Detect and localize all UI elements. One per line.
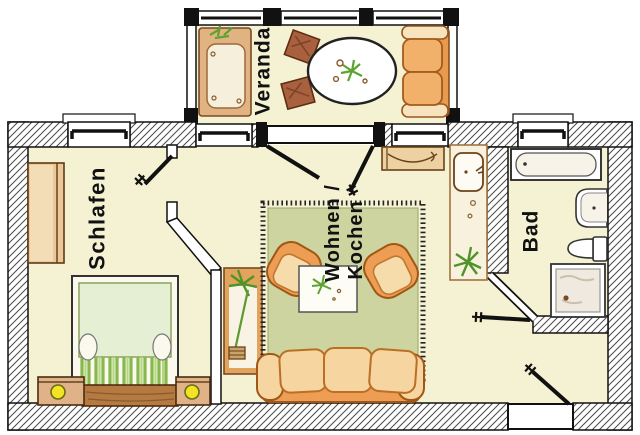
tall-plant [224,268,262,374]
window-living-right [392,124,448,146]
double-bed [72,276,178,406]
shower [551,264,605,317]
wall-right [608,122,632,430]
bathtub [511,149,601,180]
room-label-veranda: Veranda [252,27,275,116]
shower-drain-icon [563,295,568,300]
sink-counter [450,145,487,280]
floorplan-image: Veranda Schlafen Wohnen / Kochen Bad [0,0,640,435]
wall-bottom [573,403,632,430]
room-label-wohnen: Wohnen / [322,184,344,282]
wall-bottom [8,403,508,430]
wall-bath-left [487,147,508,273]
partition-bedroom [211,270,221,404]
sofa-cushion [279,349,327,393]
veranda-table [308,38,396,104]
nightstand-left [38,377,84,405]
door-slab [267,126,374,143]
veranda-post [184,8,199,26]
room-label-schlafen: Schlafen [85,166,110,270]
wall-top [8,122,68,147]
door-post [374,122,385,147]
window-bedroom [68,122,130,147]
bed-fringe [82,357,166,386]
bed-pillow [79,334,97,360]
veranda-post [263,8,281,26]
bed-pillow [153,334,171,360]
veranda-sofa [402,26,449,117]
bed-headboard [82,385,178,406]
room-label-bad: Bad [520,210,543,253]
door-post [256,122,267,147]
window-bath [518,122,568,147]
washbasin [576,189,607,227]
sofa-cushion [369,348,418,393]
bedside-lamp-icon [185,385,199,399]
window-living-left [196,124,252,146]
bedside-lamp-icon [51,385,65,399]
door-slab [508,404,573,429]
veranda-lounger [199,26,251,116]
kitchen-sink-icon [454,153,483,191]
sofa-cushion [324,348,372,392]
wall-top [130,122,196,147]
room-label-kochen: Kochen [345,200,367,279]
wall-top [568,122,632,147]
veranda-post [359,8,373,26]
floorplan-svg: Veranda Schlafen Wohnen / Kochen Bad [0,0,640,435]
wall-left [8,122,28,430]
kitchen-counter [382,147,444,170]
living-sofa [257,348,424,402]
nightstand-right [176,377,210,405]
wall-top [448,122,518,147]
wall-bath-bottom [533,316,608,333]
wardrobe [28,163,64,263]
veranda-post [443,8,459,26]
